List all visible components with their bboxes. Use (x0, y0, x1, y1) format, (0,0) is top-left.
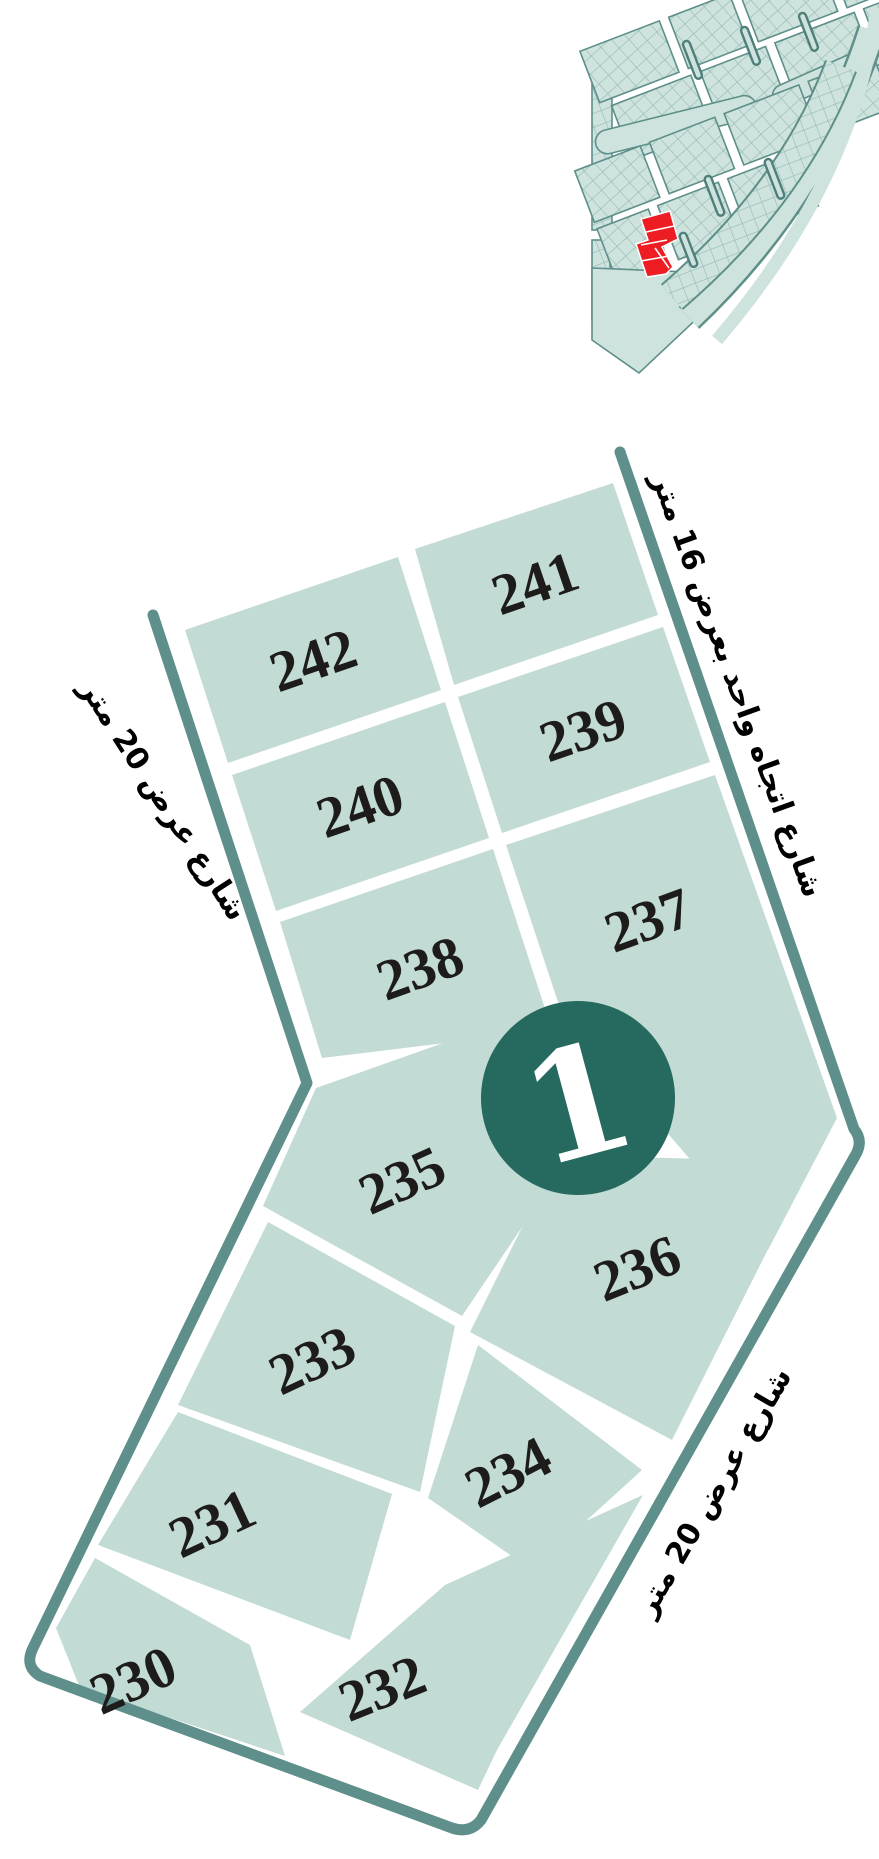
plot-map-canvas: 242241240239238237235236233234231230232 … (0, 0, 879, 1859)
overview-map (575, 0, 879, 373)
site-plan-page: 242241240239238237235236233234231230232 … (0, 0, 879, 1859)
